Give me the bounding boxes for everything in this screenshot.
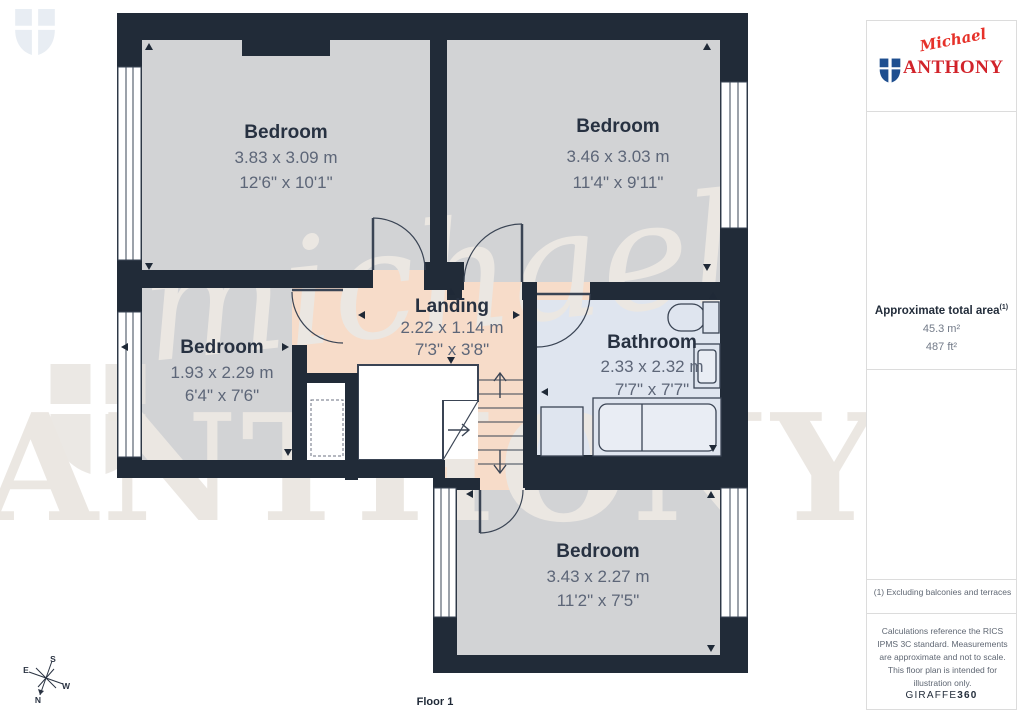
room-dim-metric: 2.33 x 2.32 m	[600, 357, 703, 376]
room-dim-metric: 1.93 x 2.29 m	[170, 363, 273, 382]
floorplan-page: michael ANTHONY	[0, 0, 1024, 725]
window	[721, 488, 747, 617]
room-label-bedroom-left: Bedroom 1.93 x 2.29 m 6'4" x 7'6"	[170, 337, 273, 405]
total-area-block: Approximate total area(1) 45.3 m² 487 ft…	[867, 304, 1016, 353]
brand-shield-icon	[879, 58, 901, 83]
window	[118, 67, 141, 260]
room-dim-metric: 3.46 x 3.03 m	[566, 147, 669, 166]
compass-rose: S E W N	[23, 654, 71, 705]
panel-divider	[867, 579, 1016, 580]
room-name: Bedroom	[180, 337, 263, 358]
room-label-landing: Landing 2.22 x 1.14 m 7'3" x 3'8"	[400, 296, 503, 359]
room-dim-metric: 3.43 x 2.27 m	[546, 567, 649, 586]
compass-label-e: E	[23, 665, 29, 675]
room-dim-imperial: 11'2" x 7'5"	[557, 591, 640, 610]
brand-name-text: ANTHONY	[903, 57, 1004, 79]
bathtub	[593, 398, 721, 456]
total-area-ft2: 487 ft²	[867, 341, 1016, 353]
room-dim-imperial: 11'4" x 9'11"	[573, 173, 664, 192]
compass-label-s: S	[50, 654, 56, 664]
giraffe360-regular: GIRAFFE	[905, 690, 957, 701]
wardrobe-dashed-outline	[311, 400, 343, 456]
toilet	[668, 302, 719, 333]
giraffe360-bold: 360	[957, 690, 977, 701]
total-area-title: Approximate total area(1)	[867, 304, 1016, 317]
room-dim-imperial: 6'4" x 7'6"	[185, 386, 259, 405]
giraffe360-logo: GIRAFFE360	[867, 690, 1016, 701]
room-name: Bathroom	[607, 332, 697, 353]
window	[118, 312, 141, 457]
corner-shield-icon	[14, 8, 56, 56]
disclaimer-text: Calculations reference the RICS IPMS 3C …	[877, 625, 1008, 690]
area-footnote: (1) Excluding balconies and terraces	[873, 587, 1012, 597]
floor-label: Floor 1	[385, 696, 485, 708]
bathroom-cupboard	[541, 407, 583, 456]
footnote-marker: (1)	[1000, 304, 1009, 311]
room-name: Landing	[415, 296, 489, 317]
brand-script-text: Michael	[902, 22, 1004, 59]
window	[434, 488, 456, 617]
panel-divider	[867, 111, 1016, 112]
room-label-bedroom-top-right: Bedroom 3.46 x 3.03 m 11'4" x 9'11"	[566, 116, 669, 192]
total-area-m2: 45.3 m²	[867, 323, 1016, 335]
room-name: Bedroom	[576, 116, 659, 137]
room-name: Bedroom	[244, 122, 327, 143]
compass-label-w: W	[62, 681, 71, 691]
room-dim-metric: 2.22 x 1.14 m	[400, 318, 503, 337]
window	[721, 82, 747, 228]
closet	[307, 383, 345, 460]
room-dim-imperial: 7'3" x 3'8"	[415, 340, 489, 359]
panel-divider	[867, 369, 1016, 370]
room-dim-imperial: 7'7" x 7'7"	[615, 380, 689, 399]
room-label-bathroom: Bathroom 2.33 x 2.32 m 7'7" x 7'7"	[600, 332, 703, 399]
room-label-bedroom-top-left: Bedroom 3.83 x 3.09 m 12'6" x 10'1"	[234, 122, 337, 192]
room-label-bedroom-bottom: Bedroom 3.43 x 2.27 m 11'2" x 7'5"	[546, 541, 649, 610]
room-dim-metric: 3.83 x 3.09 m	[234, 148, 337, 167]
room-name: Bedroom	[556, 541, 639, 562]
panel-divider	[867, 613, 1016, 614]
info-panel: Michael ANTHONY Approximate total area(1…	[866, 20, 1017, 710]
brand-logo: Michael ANTHONY	[867, 21, 1016, 111]
compass-label-n: N	[35, 695, 41, 705]
room-dim-imperial: 12'6" x 10'1"	[239, 173, 332, 192]
